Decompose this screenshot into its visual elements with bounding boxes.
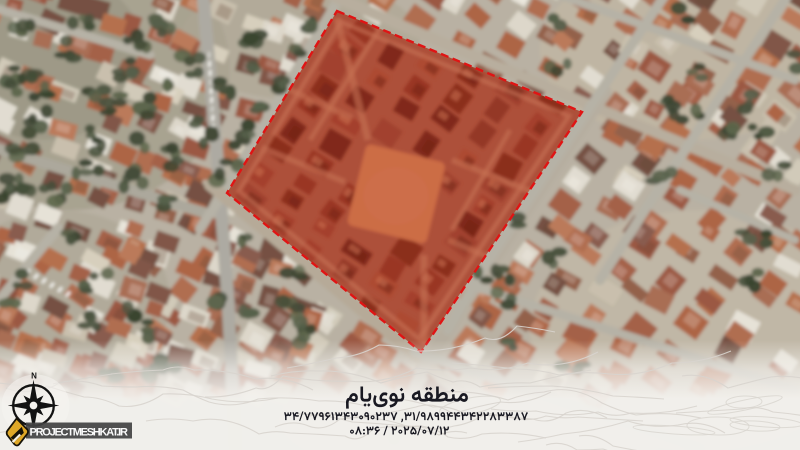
svg-text:N: N bbox=[31, 372, 37, 381]
svg-text:PROJECTMESHKAT.IR: PROJECTMESHKAT.IR bbox=[30, 427, 128, 439]
